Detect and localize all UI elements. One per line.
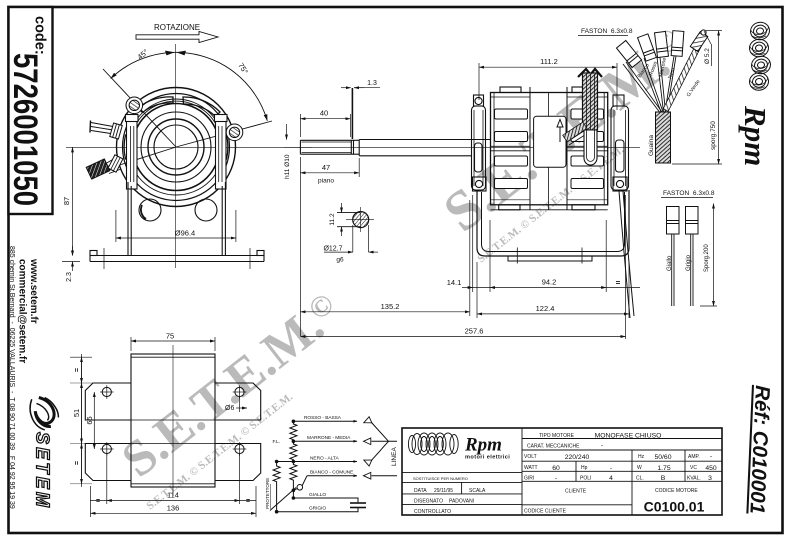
svg-text:Guaina: Guaina <box>648 135 655 156</box>
svg-text:=: = <box>74 368 81 372</box>
svg-text:=: = <box>616 279 621 288</box>
svg-text:50/60: 50/60 <box>654 454 671 461</box>
svg-text:135.2: 135.2 <box>381 302 400 311</box>
svg-text:SCALA: SCALA <box>469 488 486 494</box>
svg-text:POLI: POLI <box>580 475 591 481</box>
svg-text:11.2: 11.2 <box>329 213 336 226</box>
svg-text:FASTON 6.3x0.8: FASTON 6.3x0.8 <box>581 28 633 35</box>
svg-text:60: 60 <box>552 465 560 472</box>
svg-text:=: = <box>96 498 100 505</box>
svg-text:Sporg.200: Sporg.200 <box>704 244 710 272</box>
svg-text:code:: code: <box>32 16 48 55</box>
svg-text:=: = <box>246 498 250 505</box>
svg-text:CODICE CLIENTE: CODICE CLIENTE <box>524 509 567 515</box>
svg-text:C0100.01: C0100.01 <box>644 499 705 515</box>
svg-text:47: 47 <box>322 163 330 172</box>
svg-text:LINEA: LINEA <box>391 447 398 466</box>
svg-text:ROTAZIONE: ROTAZIONE <box>154 23 200 32</box>
svg-text:Grigio: Grigio <box>686 254 692 271</box>
svg-text:Ø6: Ø6 <box>225 405 234 412</box>
svg-text:94.2: 94.2 <box>542 278 557 287</box>
svg-text:BIANCO - COMUNE: BIANCO - COMUNE <box>310 470 353 476</box>
svg-text:CARAT. MECCANICHE: CARAT. MECCANICHE <box>527 444 580 450</box>
svg-text:MONOFASE CHIUSO: MONOFASE CHIUSO <box>595 433 662 440</box>
svg-text:TIPO MOTORE: TIPO MOTORE <box>539 433 575 439</box>
svg-text:VC: VC <box>690 465 697 471</box>
svg-text:h11 Ø10: h11 Ø10 <box>284 154 291 179</box>
svg-text:g6: g6 <box>336 257 344 264</box>
svg-text:Hp: Hp <box>581 465 588 471</box>
svg-text:WATT: WATT <box>524 465 538 471</box>
svg-text:136: 136 <box>167 503 180 512</box>
svg-text:Hz: Hz <box>638 454 645 460</box>
svg-text:=: = <box>74 461 81 465</box>
svg-text:PROTETTORE: PROTETTORE <box>265 478 270 509</box>
svg-text:CODICE MOTORE: CODICE MOTORE <box>655 488 698 494</box>
svg-text:Giallo: Giallo <box>667 255 673 271</box>
svg-text:ROSSO - BASSA: ROSSO - BASSA <box>304 415 342 421</box>
svg-text:75: 75 <box>166 332 174 341</box>
svg-text:CLIENTE: CLIENTE <box>565 489 587 495</box>
svg-text:51: 51 <box>72 409 81 417</box>
svg-text:piano: piano <box>318 178 334 185</box>
svg-text:VOLT: VOLT <box>524 454 537 460</box>
svg-text:450: 450 <box>705 465 717 472</box>
svg-text:F.L.: F.L. <box>272 439 280 445</box>
svg-text:GRIGIO: GRIGIO <box>309 506 326 512</box>
svg-text:111.2: 111.2 <box>540 57 558 66</box>
svg-text:1.3: 1.3 <box>367 80 377 87</box>
svg-text:NERO - ALTA: NERO - ALTA <box>310 456 339 462</box>
svg-text:87: 87 <box>62 197 71 205</box>
svg-text:3: 3 <box>708 475 712 482</box>
svg-text:65: 65 <box>85 416 94 424</box>
svg-text:14.1: 14.1 <box>447 278 462 287</box>
svg-text:-: - <box>710 453 712 460</box>
svg-text:-: - <box>610 465 612 472</box>
svg-text:-: - <box>555 475 557 482</box>
svg-text:W: W <box>637 465 642 471</box>
svg-text:40: 40 <box>320 109 328 118</box>
svg-text:4: 4 <box>609 475 613 482</box>
svg-text:KVAL.: KVAL. <box>687 475 701 481</box>
svg-text:885 chemin St.Bernard - 0622: 885 chemin St.Bernard - 06225 VALLAURIS … <box>8 246 15 509</box>
svg-text:2.3: 2.3 <box>66 272 73 282</box>
svg-text:5726001050: 5726001050 <box>6 53 44 206</box>
svg-text:MARRONE - MEDIA: MARRONE - MEDIA <box>307 435 351 441</box>
svg-text:DISEGNATO: DISEGNATO <box>414 499 443 505</box>
svg-text:-: - <box>601 443 603 450</box>
svg-text:122.4: 122.4 <box>536 304 555 313</box>
svg-text:DATA: DATA <box>414 488 427 494</box>
svg-text:220/240: 220/240 <box>565 454 590 461</box>
svg-text:GIALLO: GIALLO <box>309 492 326 498</box>
svg-text:29/11/95: 29/11/95 <box>434 488 453 494</box>
svg-text:114: 114 <box>167 491 179 500</box>
svg-text:CONTROLLATO: CONTROLLATO <box>414 509 451 515</box>
svg-text:Ø12.7: Ø12.7 <box>323 246 342 253</box>
svg-text:motori elettrici: motori elettrici <box>465 455 510 461</box>
svg-text:1.75: 1.75 <box>657 465 670 472</box>
svg-text:Rpm: Rpm <box>738 105 773 166</box>
svg-text:B: B <box>661 475 666 482</box>
svg-text:CL.: CL. <box>636 475 644 481</box>
svg-text:Rpm: Rpm <box>464 435 502 456</box>
svg-text:GIRI: GIRI <box>524 475 534 481</box>
svg-text:sporg.750: sporg.750 <box>710 121 717 150</box>
svg-text:SOSTITUISCE PER NUMERO: SOSTITUISCE PER NUMERO <box>413 476 468 481</box>
svg-text:SETEM: SETEM <box>33 432 53 510</box>
svg-text:257.6: 257.6 <box>465 327 484 336</box>
svg-text:AMP.: AMP. <box>688 454 700 460</box>
svg-text:Ø 5.2: Ø 5.2 <box>704 48 711 64</box>
svg-text:Ø96.4: Ø96.4 <box>175 229 195 238</box>
svg-text:FASTON 6.3x0.8: FASTON 6.3x0.8 <box>663 190 715 197</box>
svg-text:PADOVANI: PADOVANI <box>449 499 474 505</box>
